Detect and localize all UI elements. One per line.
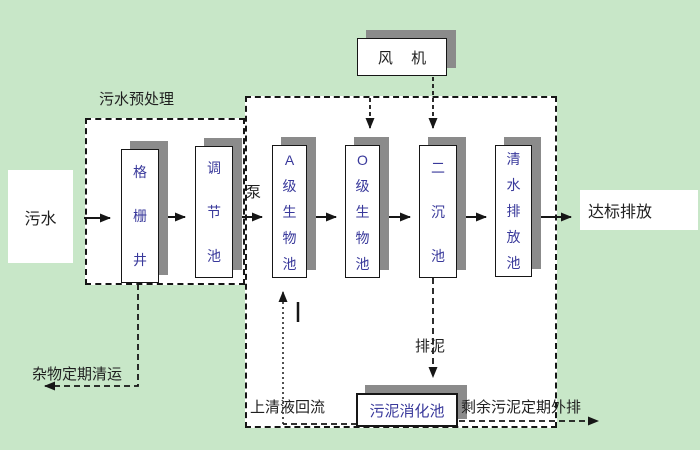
clear-water-tank-label: 清水排放池 (507, 146, 521, 276)
secondary-clarifier-node: 二沉池 (419, 145, 457, 278)
grid-well-node: 格栅井 (121, 149, 159, 283)
equalization-tank-node: 调节池 (195, 146, 233, 278)
o-bio-tank-node: O级生物池 (345, 145, 380, 278)
o-bio-tank-label: O级生物池 (356, 147, 370, 277)
secondary-clarifier-label: 二沉池 (431, 146, 445, 278)
sludge-digester-node: 污泥消化池 (356, 393, 458, 427)
blower-node: 风 机 (357, 38, 447, 76)
grid-well-label: 格栅井 (133, 150, 147, 282)
supernatant-return-label: 上清液回流 (250, 396, 325, 417)
pump-label: 泵 (246, 181, 261, 202)
sludge-digester-label: 污泥消化池 (369, 400, 444, 421)
blower-label: 风 机 (378, 47, 433, 68)
equalization-tank-label: 调节池 (207, 146, 221, 278)
process-flow-diagram: 污水 达标排放 格栅井 调节池 (0, 0, 700, 450)
debris-removal-label: 杂物定期清运 (32, 363, 122, 384)
pretreatment-section-label: 污水预处理 (99, 88, 174, 109)
clear-water-tank-node: 清水排放池 (495, 145, 532, 277)
excess-sludge-out-label: 剩余污泥定期外排 (461, 396, 581, 417)
a-bio-tank-label: A级生物池 (283, 147, 297, 277)
a-bio-tank-node: A级生物池 (272, 145, 307, 278)
sludge-discharge-label: 排泥 (415, 335, 445, 356)
